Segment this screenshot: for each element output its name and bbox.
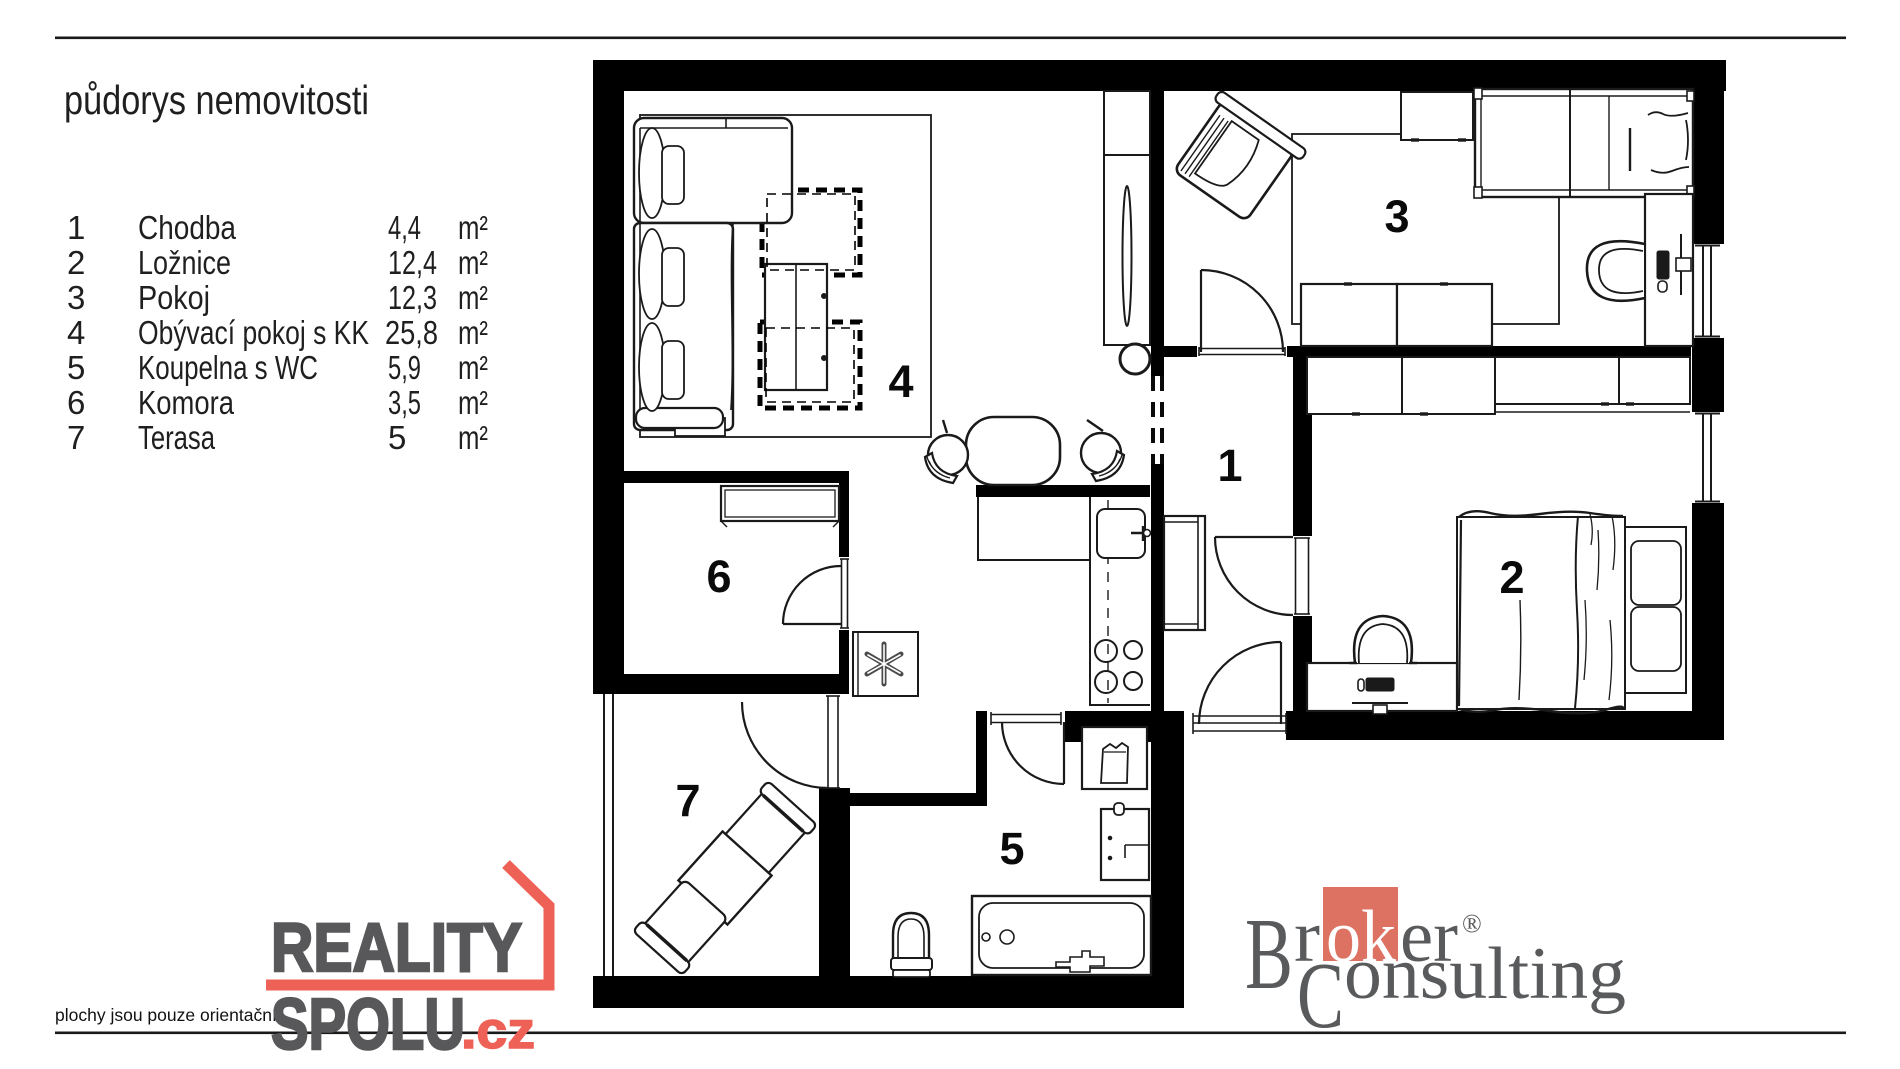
svg-text:Chodba: Chodba bbox=[138, 209, 237, 246]
svg-text:m²: m² bbox=[458, 384, 488, 421]
svg-text:m²: m² bbox=[458, 314, 488, 351]
svg-text:6: 6 bbox=[706, 551, 731, 602]
svg-text:Terasa: Terasa bbox=[138, 419, 215, 456]
svg-text:6: 6 bbox=[67, 384, 85, 421]
svg-text:4,4: 4,4 bbox=[388, 209, 421, 246]
svg-text:Ložnice: Ložnice bbox=[138, 244, 231, 281]
svg-text:7: 7 bbox=[675, 775, 700, 826]
svg-text:2: 2 bbox=[67, 244, 85, 281]
svg-text:B: B bbox=[1245, 898, 1293, 1011]
svg-text:REALITY: REALITY bbox=[271, 909, 522, 986]
svg-text:Koupelna s WC: Koupelna s WC bbox=[138, 349, 318, 386]
svg-text:m²: m² bbox=[458, 419, 488, 456]
svg-text:3: 3 bbox=[1384, 191, 1409, 242]
svg-text:4: 4 bbox=[888, 356, 913, 407]
svg-text:Komora: Komora bbox=[138, 384, 235, 421]
svg-text:onsulting: onsulting bbox=[1344, 933, 1626, 1015]
svg-text:12,3: 12,3 bbox=[388, 279, 437, 316]
svg-text:1: 1 bbox=[67, 209, 85, 246]
svg-text:4: 4 bbox=[67, 314, 85, 351]
svg-text:m²: m² bbox=[458, 244, 488, 281]
svg-text:5: 5 bbox=[999, 823, 1024, 874]
svg-text:2: 2 bbox=[1499, 552, 1524, 603]
svg-text:plochy jsou pouze orientační: plochy jsou pouze orientační bbox=[55, 1005, 277, 1025]
svg-text:12,4: 12,4 bbox=[388, 244, 437, 281]
svg-text:3: 3 bbox=[67, 279, 85, 316]
svg-text:m²: m² bbox=[458, 349, 488, 386]
svg-text:5: 5 bbox=[67, 349, 85, 386]
svg-text:m²: m² bbox=[458, 209, 488, 246]
svg-text:m²: m² bbox=[458, 279, 488, 316]
svg-text:Obývací pokoj s KK: Obývací pokoj s KK bbox=[138, 314, 369, 351]
svg-text:Pokoj: Pokoj bbox=[138, 279, 210, 316]
svg-text:3,5: 3,5 bbox=[388, 384, 421, 421]
svg-text:.cz: .cz bbox=[461, 1002, 535, 1060]
svg-text:5,9: 5,9 bbox=[388, 349, 421, 386]
svg-text:25,8: 25,8 bbox=[385, 314, 438, 351]
svg-text:5: 5 bbox=[388, 419, 406, 456]
svg-text:1: 1 bbox=[1217, 440, 1242, 491]
svg-text:C: C bbox=[1297, 944, 1344, 1048]
svg-text:7: 7 bbox=[67, 419, 85, 456]
svg-text:půdorys nemovitosti: půdorys nemovitosti bbox=[64, 77, 369, 123]
svg-text:SPOLU: SPOLU bbox=[271, 985, 465, 1065]
